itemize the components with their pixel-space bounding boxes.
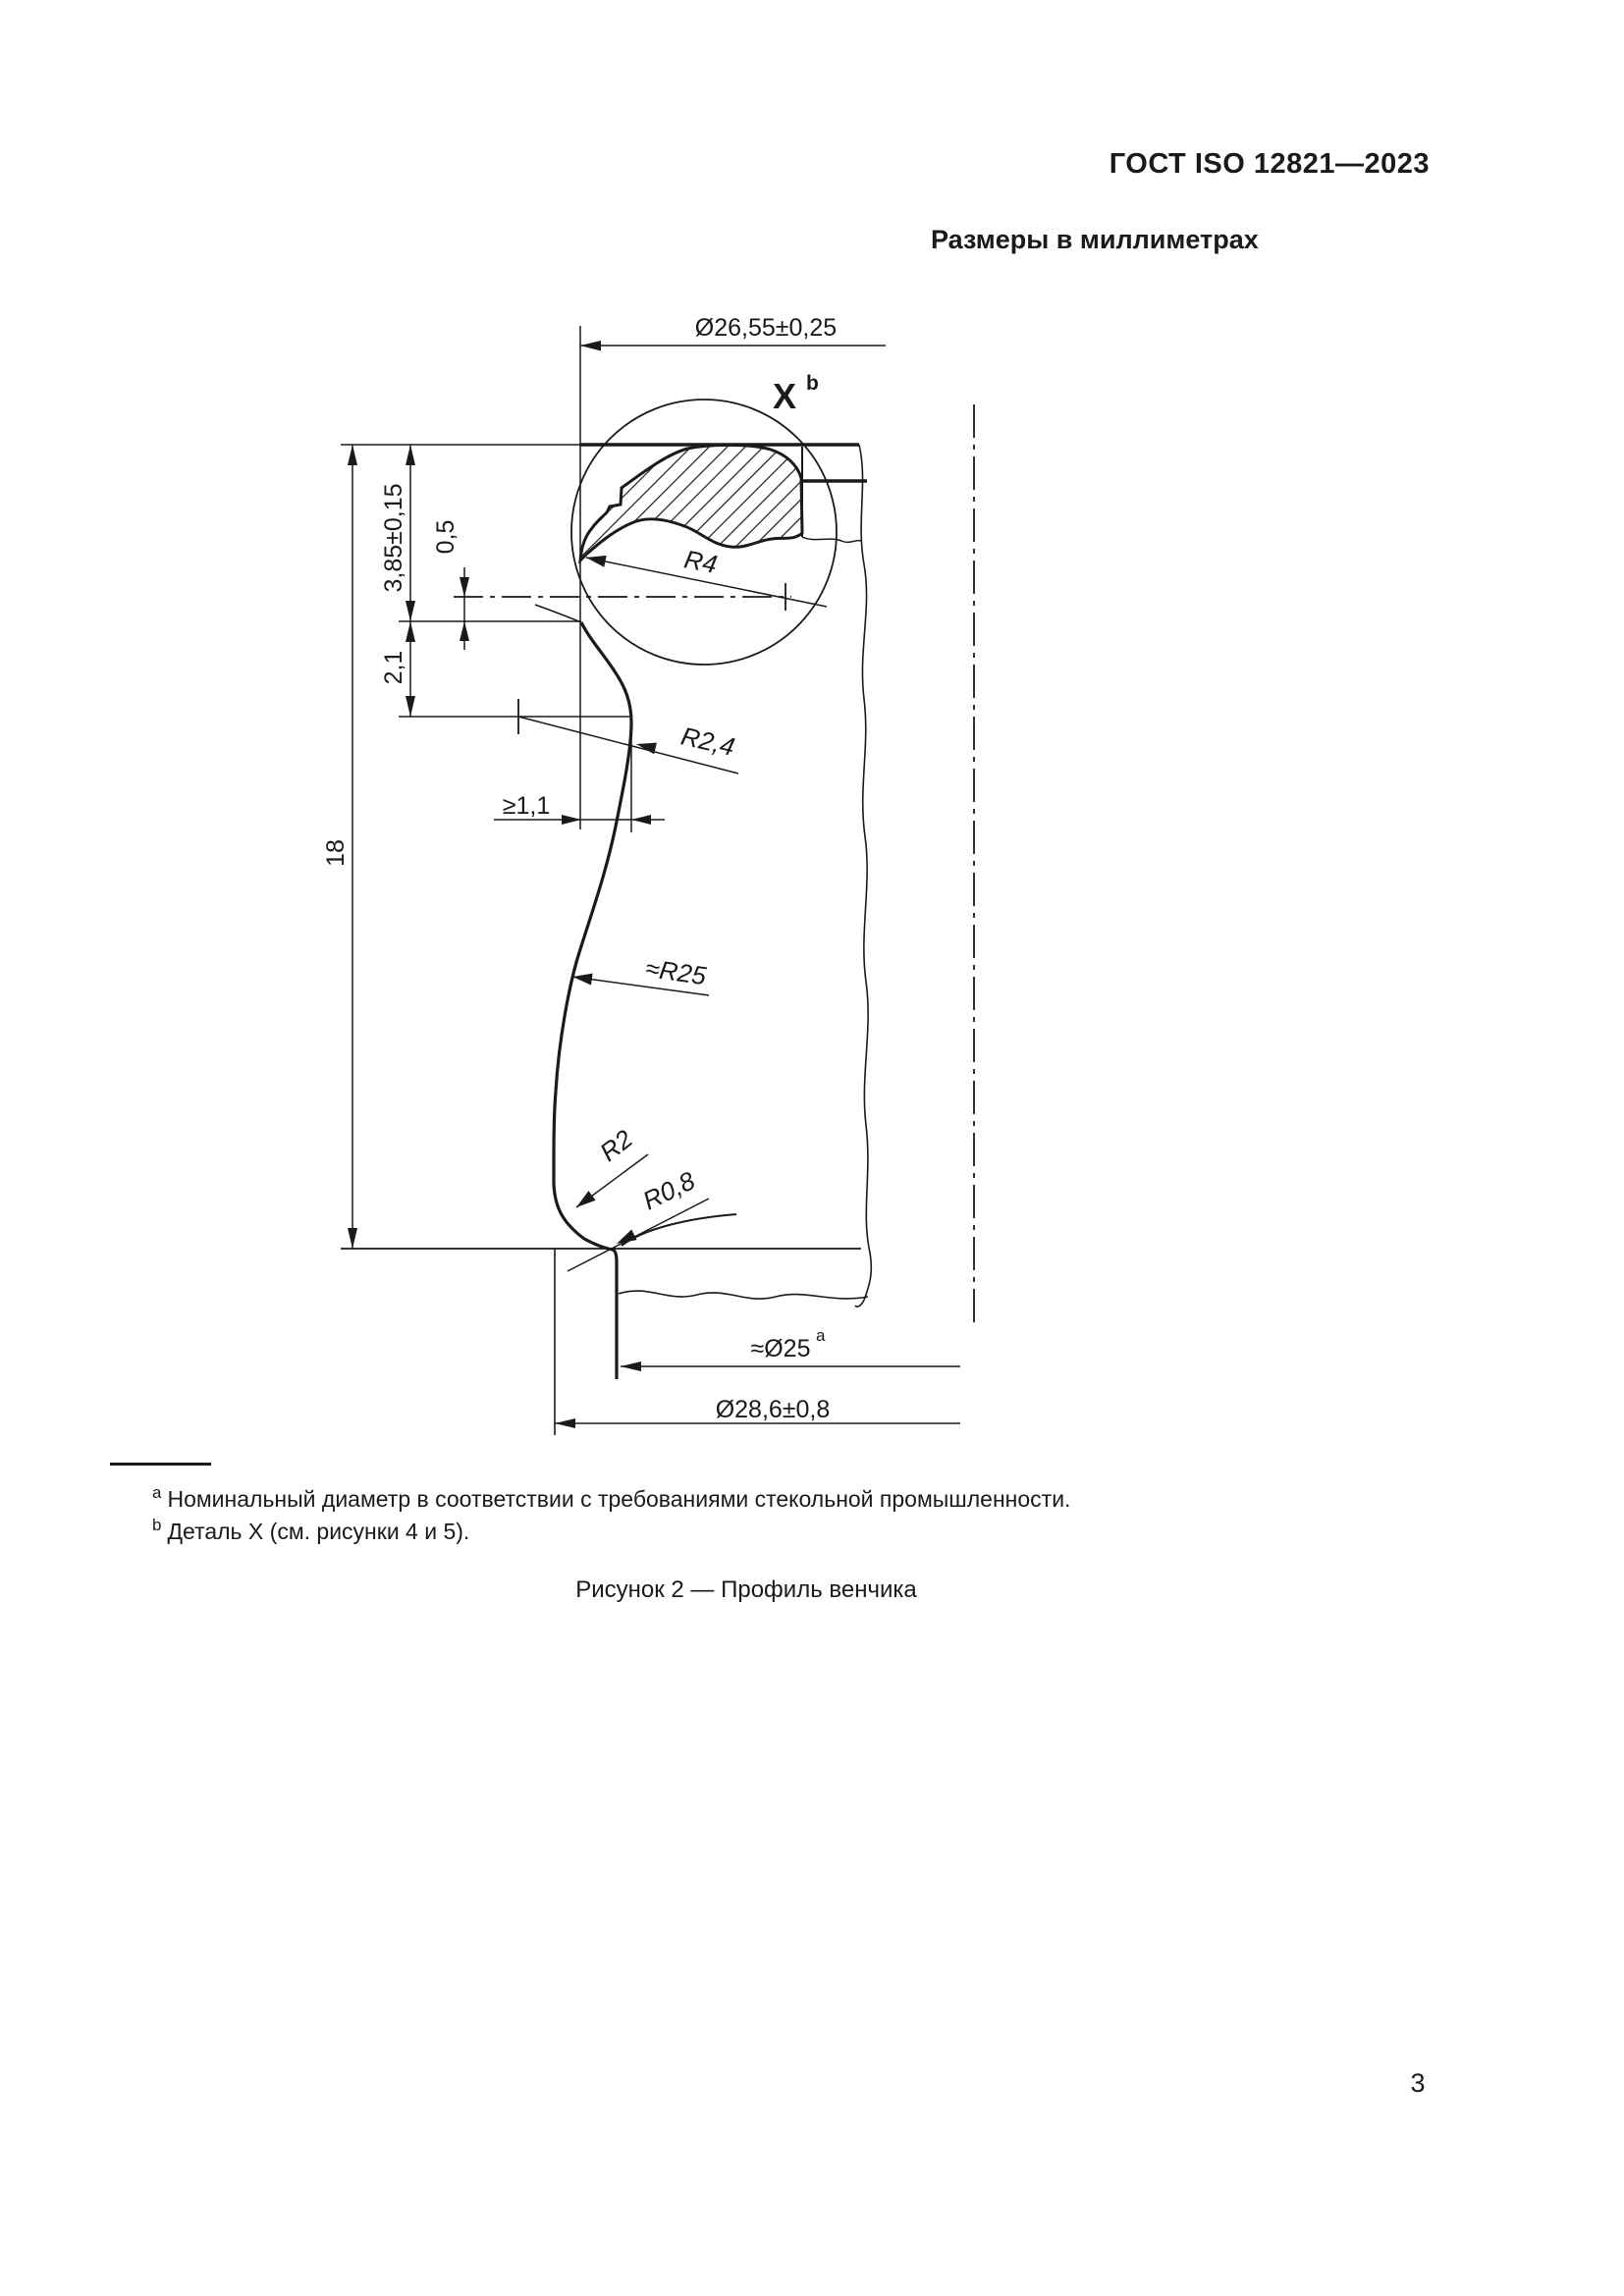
dim-axis-offset-label: 0,5 bbox=[432, 520, 460, 555]
dim-undercut-radius-label: R2,4 bbox=[678, 721, 737, 762]
dim-collar-radius-label: R2 bbox=[594, 1124, 638, 1167]
figure-caption: Рисунок 2 — Профиль венчика bbox=[393, 1576, 1100, 1604]
drawing-linework bbox=[341, 326, 974, 1435]
arrow-05-upper bbox=[460, 577, 469, 597]
footnote-a-marker: a bbox=[152, 1483, 161, 1502]
dim-neck-diameter-label: ≈Ø25 bbox=[751, 1335, 811, 1362]
arrow-18-bottom bbox=[348, 1228, 357, 1249]
arrow-bead-radius bbox=[586, 556, 607, 567]
arrow-collar-radius bbox=[576, 1191, 596, 1207]
footnotes-block: aНоминальный диаметр в соответствии с тр… bbox=[152, 1483, 1070, 1548]
footnote-a: aНоминальный диаметр в соответствии с тр… bbox=[152, 1483, 1070, 1516]
footnote-b-text: Деталь X (см. рисунки 4 и 5). bbox=[167, 1519, 469, 1544]
dim-neck-radius-label: ≈R25 bbox=[643, 953, 708, 990]
arrow-18-top bbox=[348, 445, 357, 465]
right-break-line bbox=[855, 445, 871, 1307]
dim-min-wall-label: ≥1,1 bbox=[503, 792, 550, 820]
footnote-b-marker: b bbox=[152, 1516, 161, 1534]
page-number: 3 bbox=[1388, 2068, 1447, 2099]
arrow-21-bottom bbox=[406, 696, 415, 717]
arrow-385-bottom bbox=[406, 601, 415, 621]
arrow-fillet-radius bbox=[617, 1230, 637, 1245]
dim-undercut-height-label: 2,1 bbox=[380, 651, 407, 685]
finish-profile-drawing: Ø26,55±0,25 X b 3,85±0,15 0,5 2,1 18 R4 … bbox=[0, 0, 1624, 2296]
arrow-neck-diameter bbox=[621, 1362, 641, 1371]
dim-collar-diameter-label: Ø28,6±0,8 bbox=[716, 1396, 831, 1423]
arrow-21-top bbox=[406, 621, 415, 642]
bottom-break-line bbox=[619, 1291, 868, 1299]
detail-x-label: X bbox=[773, 376, 796, 416]
arrow-min-wall-right bbox=[631, 815, 651, 825]
document-page: ГОСТ ISO 12821—2023 Размеры в миллиметра… bbox=[0, 0, 1624, 2296]
collar-underside-curve bbox=[622, 1214, 736, 1246]
section-break-wave bbox=[802, 537, 861, 542]
arrow-neck-radius bbox=[572, 974, 593, 986]
dim-bead-radius-label: R4 bbox=[682, 544, 720, 579]
arrow-385-top bbox=[406, 445, 415, 465]
dim-bead-height-label: 3,85±0,15 bbox=[380, 483, 407, 592]
footnote-divider bbox=[110, 1463, 211, 1466]
bead-section-outline bbox=[580, 445, 802, 561]
dim-finish-height-label: 18 bbox=[322, 839, 350, 867]
bead-underside-curve bbox=[535, 605, 581, 622]
detail-x-superscript: b bbox=[806, 372, 819, 395]
arrow-min-wall-left bbox=[562, 815, 581, 825]
dim-neck-diameter-superscript: a bbox=[816, 1326, 826, 1345]
leader-fillet-radius bbox=[568, 1199, 709, 1271]
footnote-b: bДеталь X (см. рисунки 4 и 5). bbox=[152, 1516, 1070, 1548]
arrow-top-diameter bbox=[580, 341, 601, 351]
dim-top-diameter-label: Ø26,55±0,25 bbox=[695, 314, 837, 342]
arrow-05-lower bbox=[460, 621, 469, 641]
arrow-collar-diameter bbox=[555, 1418, 575, 1428]
footnote-a-text: Номинальный диаметр в соответствии с тре… bbox=[167, 1486, 1070, 1512]
